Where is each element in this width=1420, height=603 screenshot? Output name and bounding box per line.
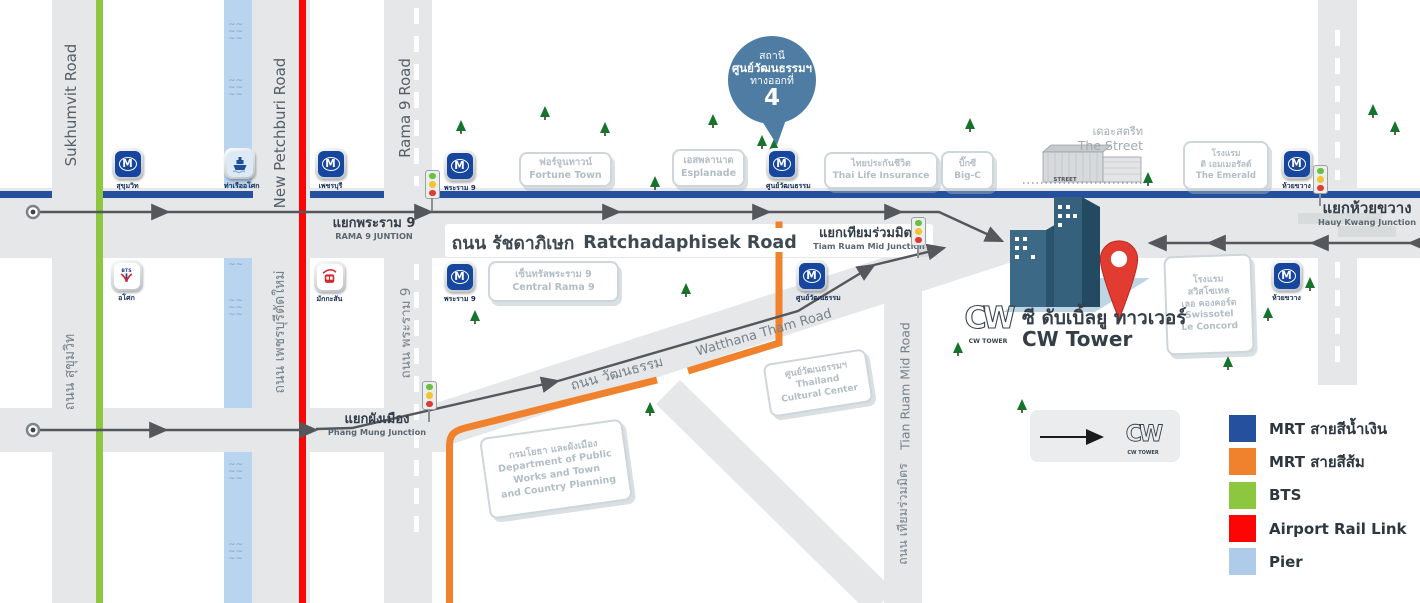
road-name-label: ถนน พระราม 9 bbox=[394, 288, 416, 379]
station-label: ห้วยขวาง bbox=[1271, 293, 1302, 304]
landmark-box: เอสพลานาดEsplanade bbox=[672, 149, 745, 187]
landmark-box: ไทยประกันชีวิตThai Life Insurance bbox=[824, 152, 938, 189]
cw-tower-access-map: STREET เดอะสตรีท The Street CW CW TOWER … bbox=[0, 0, 1420, 603]
landmark-line: โรงแรม bbox=[1185, 149, 1267, 160]
tree-icon bbox=[1263, 307, 1273, 321]
landmark-line: The Emerald bbox=[1185, 171, 1267, 182]
road-name-label: ถนน เทียมร่วมมิตร bbox=[893, 463, 913, 565]
the-street-label: เดอะสตรีท The Street bbox=[1035, 126, 1143, 153]
landmark-box: บิ๊กซีBig-C bbox=[941, 151, 994, 190]
lane-divider bbox=[1335, 30, 1340, 180]
bts-station-icon: BTS bbox=[111, 260, 142, 291]
legend-item-label: Pier bbox=[1269, 553, 1303, 571]
station-mrt: Mศูนย์วัฒนธรรม bbox=[796, 260, 827, 304]
station-label: พระราม 9 bbox=[444, 183, 475, 194]
legend-color-swatch bbox=[1229, 548, 1256, 575]
road-name-label: New Petchburi Road bbox=[271, 58, 289, 209]
mrt-blue-line bbox=[432, 191, 1420, 198]
canal-wave: ~~ ~~ ~~ bbox=[228, 542, 243, 563]
pier-icon bbox=[224, 148, 255, 179]
junction-label: แยกเทียมร่วมมิตรTiam Ruam Mid Junction bbox=[813, 227, 925, 252]
junction-eng: RAMA 9 JUNTION bbox=[333, 231, 416, 242]
landmark-line: ไทยประกันชีวิต bbox=[826, 159, 936, 171]
tree-icon bbox=[1143, 172, 1153, 186]
landmark-line: Fortune Town bbox=[521, 170, 610, 183]
canal-wave: ~~ ~~ ~~ bbox=[228, 462, 243, 483]
tree-icon bbox=[681, 283, 691, 297]
tree-icon bbox=[540, 106, 550, 120]
svg-text:CW: CW bbox=[1126, 422, 1163, 447]
station-label: อโศก bbox=[111, 293, 142, 304]
landmark-box: โรงแรมดิ เอมเมอรัลด์The Emerald bbox=[1183, 141, 1269, 190]
landmark-line: Big-C bbox=[943, 171, 992, 183]
legend-color-swatch bbox=[1229, 415, 1256, 442]
legend-item: MRT สายสีส้ม bbox=[1229, 445, 1407, 478]
junction-thai: แยกพระราม 9 bbox=[333, 217, 416, 231]
road-name-label: Ratchadaphisek Road bbox=[583, 233, 796, 253]
lane-divider bbox=[414, 8, 419, 186]
legend-cw-caption: CW TOWER bbox=[1127, 450, 1159, 456]
landmark-line: เซ็นทรัลพระราม 9 bbox=[490, 269, 617, 282]
mrt-blue-line bbox=[103, 191, 253, 198]
legend-item-label: BTS bbox=[1269, 486, 1301, 504]
station-arl: มักกะสัน bbox=[314, 261, 345, 305]
station-label: พระราม 9 bbox=[444, 294, 475, 305]
tree-icon bbox=[600, 122, 610, 136]
tree-icon bbox=[1017, 399, 1027, 413]
airport-rail-link-line bbox=[299, 0, 306, 603]
junction-label: แยกห้วยขวางHauy Kwang Junction bbox=[1318, 200, 1416, 227]
station-label: ท่าเรืออโศก bbox=[224, 181, 255, 192]
station-mrt: Mสุขุมวิท bbox=[112, 148, 143, 192]
station-label: ศูนย์วัฒนธรรม bbox=[796, 293, 827, 304]
road-name-label: Sukhumvit Road bbox=[62, 44, 80, 167]
road-name-label: Tian Ruam Mid Road bbox=[898, 322, 913, 450]
legend-item: MRT สายสีน้ำเงิน bbox=[1229, 412, 1407, 445]
the-street-eng: The Street bbox=[1035, 139, 1143, 153]
junction-thai: แยกเทียมร่วมมิตร bbox=[813, 227, 925, 241]
mrt-station-icon: M bbox=[315, 148, 346, 179]
legend-color-swatch bbox=[1229, 515, 1256, 542]
station-label: ศูนย์วัฒนธรรม bbox=[766, 181, 797, 192]
landmark-line: บิ๊กซี bbox=[943, 159, 992, 171]
tree-icon bbox=[1305, 277, 1315, 291]
junction-label: แยกผังเมืองPhang Mung Junction bbox=[328, 413, 426, 438]
cw-logo-caption: CW TOWER bbox=[969, 338, 1008, 345]
tree-icon bbox=[708, 114, 718, 128]
the-street-thai: เดอะสตรีท bbox=[1035, 126, 1143, 139]
legend-item: Airport Rail Link bbox=[1229, 512, 1407, 545]
street-sign: STREET bbox=[1053, 177, 1076, 183]
legend-item: BTS bbox=[1229, 479, 1407, 512]
station-bts: BTSอโศก bbox=[111, 260, 142, 304]
junction-eng: Hauy Kwang Junction bbox=[1318, 217, 1416, 228]
tree-icon bbox=[456, 120, 466, 134]
landmark-line: ฟอร์จูนทาวน์ bbox=[521, 157, 610, 170]
station-label: มักกะสัน bbox=[314, 294, 345, 305]
svg-text:BTS: BTS bbox=[121, 268, 132, 274]
cw-tower-title-eng: CW Tower bbox=[1022, 327, 1132, 351]
tree-icon bbox=[650, 176, 660, 190]
junction-thai: แยกผังเมือง bbox=[328, 413, 426, 427]
legend-item-label: MRT สายสีน้ำเงิน bbox=[1269, 417, 1387, 441]
tree-icon bbox=[1368, 104, 1378, 118]
station-label: เพชรบุรี bbox=[315, 181, 346, 192]
lane-divider bbox=[1335, 262, 1340, 374]
canal-wave: ~~ ~~ ~~ bbox=[228, 298, 243, 319]
landmark-box: ฟอร์จูนทาวน์Fortune Town bbox=[519, 152, 612, 187]
mrt-blue-line bbox=[310, 191, 384, 198]
canal-wave: ~~ ~~ ~~ bbox=[228, 78, 243, 99]
tree-icon bbox=[1223, 356, 1233, 370]
junction-thai: แยกห้วยขวาง bbox=[1318, 200, 1416, 217]
cw-tower-logo: CW CW TOWER bbox=[960, 296, 1016, 350]
crosswalk bbox=[1338, 226, 1396, 237]
tree-icon bbox=[645, 402, 655, 416]
legend: MRT สายสีน้ำเงินMRT สายสีส้มBTSAirport R… bbox=[1229, 412, 1407, 578]
mrt-station-icon: M bbox=[1271, 260, 1302, 291]
station-mrt: Mพระราม 9 bbox=[444, 261, 475, 305]
callout-line2: ศูนย์วัฒนธรรมฯ bbox=[732, 62, 812, 75]
landmark-line: Central Rama 9 bbox=[490, 282, 617, 295]
landmark-line: ดิ เอมเมอรัลด์ bbox=[1185, 160, 1267, 171]
station-mrt: Mห้วยขวาง bbox=[1281, 148, 1312, 192]
tree-icon bbox=[470, 310, 480, 324]
road-name-label: ถนน เพชรบุรีตัดใหม่ bbox=[269, 271, 291, 394]
traffic-light-icon bbox=[911, 217, 926, 246]
svg-text:CW: CW bbox=[964, 301, 1015, 336]
mrt-station-icon: M bbox=[796, 260, 827, 291]
station-pier: ท่าเรืออโศก bbox=[224, 148, 255, 192]
traffic-light-icon bbox=[425, 170, 440, 199]
mrt-blue-line bbox=[0, 191, 52, 198]
mrt-station-icon: M bbox=[444, 150, 475, 181]
junction-eng: Phang Mung Junction bbox=[328, 427, 426, 438]
legend-cw-box: CW CW TOWER bbox=[1030, 410, 1180, 462]
airport-rail-link-station-icon bbox=[314, 261, 345, 292]
mrt-station-icon: M bbox=[444, 261, 475, 292]
landmark-line: Esplanade bbox=[674, 168, 743, 181]
legend-item: Pier bbox=[1229, 545, 1407, 578]
road-name-label: ถนน สุขุมวิท bbox=[59, 334, 81, 411]
station-mrt: Mพระราม 9 bbox=[444, 150, 475, 194]
traffic-light-icon bbox=[422, 381, 437, 410]
station-mrt: Mห้วยขวาง bbox=[1271, 260, 1302, 304]
junction-eng: Tiam Ruam Mid Junction bbox=[813, 241, 925, 252]
tree-icon bbox=[1390, 121, 1400, 135]
station-mrt: Mศูนย์วัฒนธรรม bbox=[766, 148, 797, 192]
legend-color-swatch bbox=[1229, 482, 1256, 509]
landmark-line: Thai Life Insurance bbox=[826, 171, 936, 183]
station-label: ห้วยขวาง bbox=[1281, 181, 1312, 192]
road-name-label: ถนน รัชดาภิเษก bbox=[452, 229, 575, 257]
legend-item-label: MRT สายสีส้ม bbox=[1269, 450, 1365, 474]
mrt-station-icon: M bbox=[112, 148, 143, 179]
tree-icon bbox=[965, 118, 975, 132]
station-mrt: Mเพชรบุรี bbox=[315, 148, 346, 192]
landmark-line: เอสพลานาด bbox=[674, 155, 743, 168]
road-name-label: Rama 9 Road bbox=[396, 58, 414, 158]
landmark-box: ศูนย์วัฒนธรรมฯThailandCultural Center bbox=[762, 348, 873, 418]
traffic-light-icon bbox=[1313, 165, 1328, 194]
junction-label: แยกพระราม 9RAMA 9 JUNTION bbox=[333, 217, 416, 242]
mrt-station-icon: M bbox=[1281, 148, 1312, 179]
legend-item-label: Airport Rail Link bbox=[1269, 520, 1407, 538]
landmark-box: กรมโยธา และผังเมืองDepartment of PublicW… bbox=[479, 418, 633, 519]
mrt-station-icon: M bbox=[766, 148, 797, 179]
canal-wave: ~~ ~~ ~~ bbox=[228, 22, 243, 43]
landmark-box: เซ็นทรัลพระราม 9Central Rama 9 bbox=[488, 261, 619, 302]
callout-bubble: สถานี ศูนย์วัฒนธรรมฯ ทางออกที่ 4 bbox=[728, 36, 816, 124]
callout-exit-number: 4 bbox=[764, 87, 780, 110]
station-label: สุขุมวิท bbox=[112, 181, 143, 192]
bts-line bbox=[96, 0, 103, 603]
legend-color-swatch bbox=[1229, 448, 1256, 475]
